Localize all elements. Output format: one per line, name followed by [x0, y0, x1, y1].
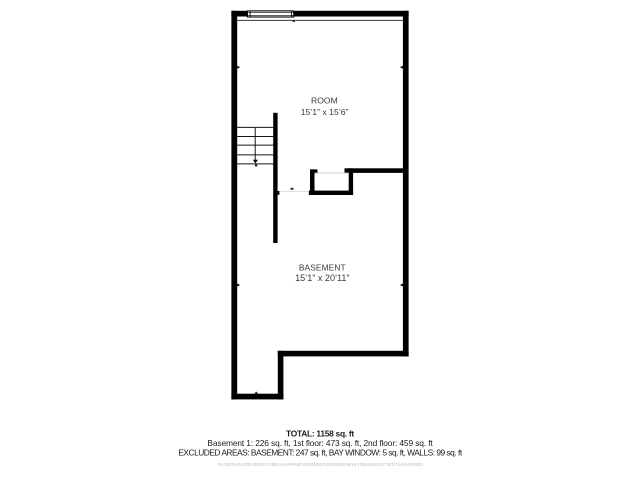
svg-text:EXCLUDED AREAS: BASEMENT: 247: EXCLUDED AREAS: BASEMENT: 247 sq. ft, BA… [178, 448, 462, 458]
svg-text:15’1” x 20’11”: 15’1” x 20’11” [295, 273, 349, 283]
svg-text:Basement 1: 226 sq. ft, 1st fl: Basement 1: 226 sq. ft, 1st floor: 473 s… [207, 438, 433, 448]
svg-text:FLOOR PLAN CREATED BY CUBICASA: FLOOR PLAN CREATED BY CUBICASA APP. MEAS… [218, 462, 423, 467]
svg-text:ROOM: ROOM [311, 96, 338, 106]
svg-text:BASEMENT: BASEMENT [299, 262, 346, 272]
svg-text:15’1” x 15’6”: 15’1” x 15’6” [301, 107, 349, 117]
